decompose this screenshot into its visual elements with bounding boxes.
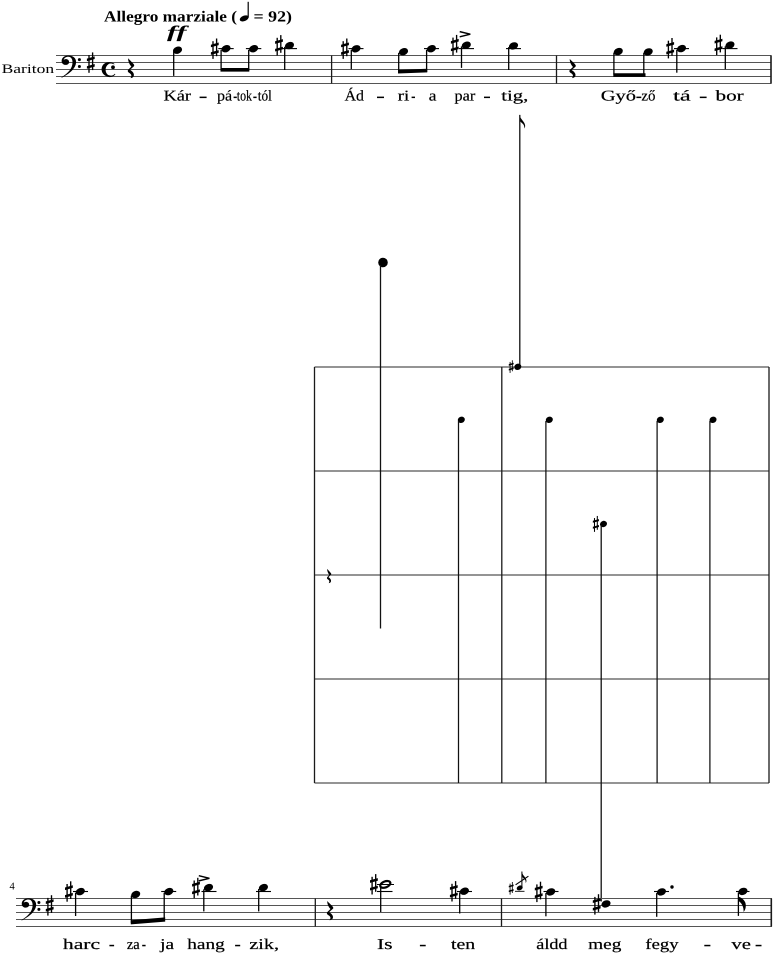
- svg-text:Is: Is: [377, 937, 393, 953]
- svg-text:= 92): = 92): [254, 9, 293, 26]
- svg-text:pá: pá: [217, 89, 233, 105]
- svg-text:fegy: fegy: [645, 937, 679, 953]
- svg-text:Győ: Győ: [601, 89, 636, 105]
- svg-text:za: za: [127, 937, 140, 953]
- svg-text:Ád: Ád: [345, 88, 365, 105]
- svg-text:ző: ző: [641, 89, 655, 105]
- svg-text:harc: harc: [63, 937, 101, 953]
- svg-text:ja: ja: [159, 937, 175, 953]
- svg-text:tá: tá: [673, 89, 691, 105]
- svg-text:ri: ri: [398, 89, 410, 105]
- svg-text:hang: hang: [187, 937, 225, 953]
- svg-text:ve: ve: [731, 937, 751, 953]
- svg-text:tok: tok: [237, 89, 253, 105]
- svg-text:4: 4: [10, 882, 16, 893]
- svg-text:a: a: [429, 89, 437, 105]
- svg-text:Kár: Kár: [164, 89, 192, 105]
- svg-text:par: par: [455, 89, 476, 105]
- svg-text:zik,: zik,: [249, 937, 279, 953]
- svg-text:ten: ten: [451, 937, 476, 953]
- svg-text:tól: tól: [258, 89, 272, 105]
- svg-text:Bariton: Bariton: [2, 61, 55, 76]
- svg-text:áldd: áldd: [536, 937, 568, 953]
- svg-text:tig,: tig,: [501, 89, 528, 105]
- svg-text:bor: bor: [716, 89, 744, 105]
- svg-text:meg: meg: [588, 937, 622, 953]
